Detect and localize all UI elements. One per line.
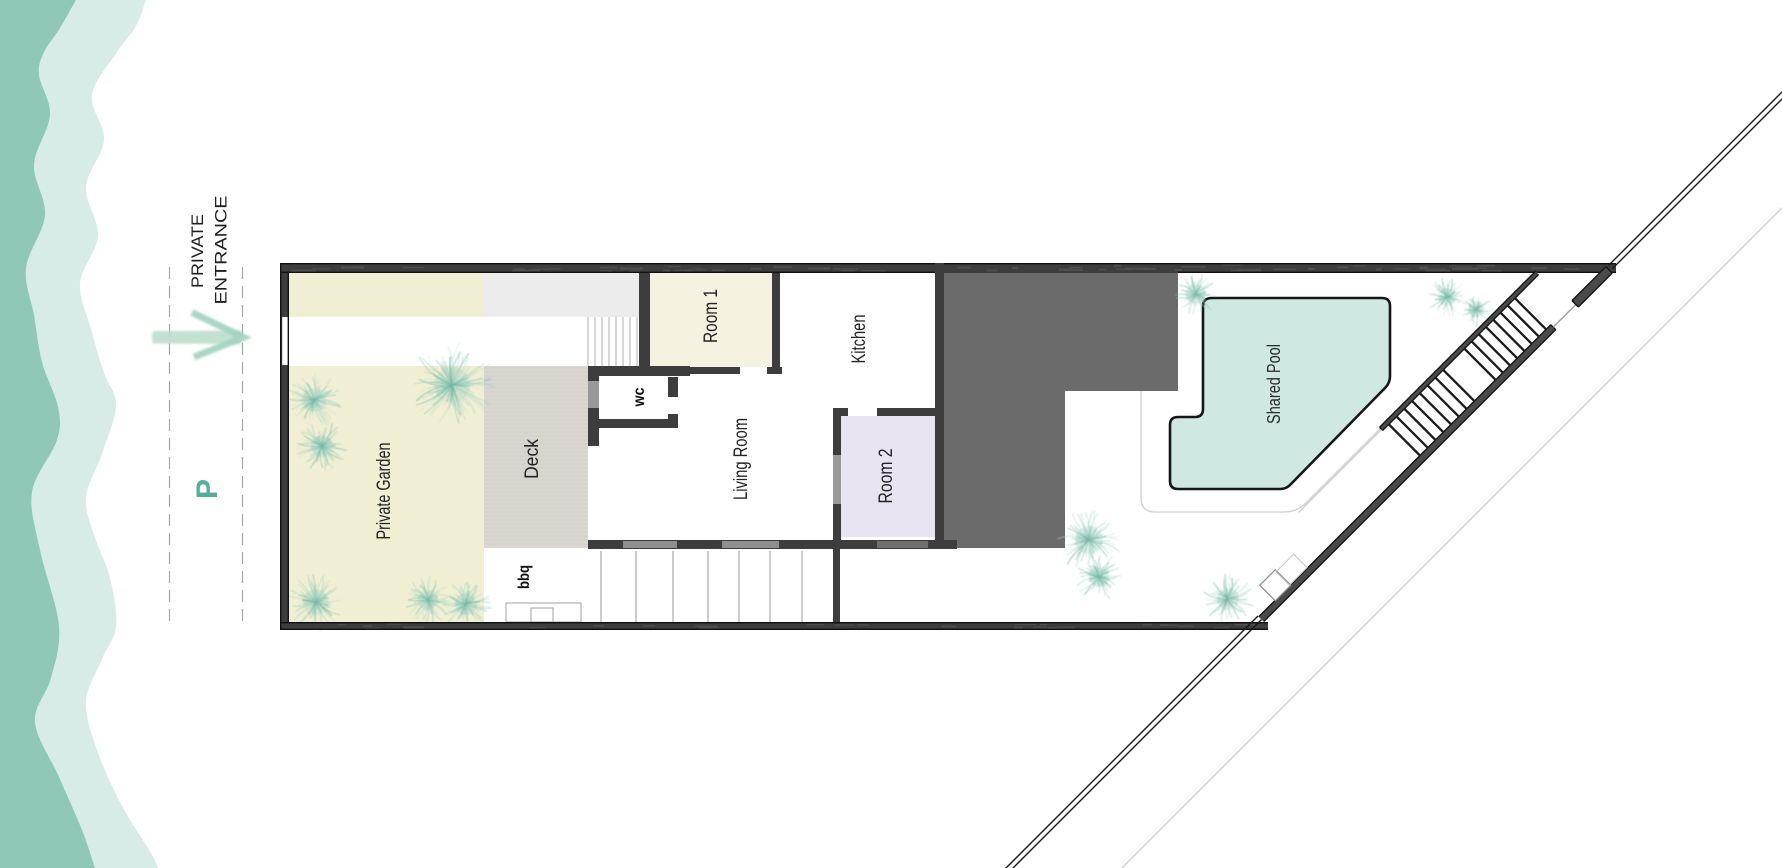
svg-text:bbq: bbq — [516, 565, 533, 589]
svg-text:P: P — [191, 479, 224, 499]
svg-text:Private Garden: Private Garden — [374, 443, 395, 540]
svg-text:Shared Pool: Shared Pool — [1264, 344, 1284, 424]
svg-text:ENTRANCE: ENTRANCE — [211, 196, 230, 305]
svg-text:Living Room: Living Room — [731, 418, 752, 500]
svg-text:Deck: Deck — [522, 439, 543, 479]
svg-text:Room 1: Room 1 — [701, 289, 722, 343]
svg-text:Room 2: Room 2 — [876, 449, 897, 504]
svg-text:PRIVATE: PRIVATE — [188, 214, 207, 288]
svg-text:wc: wc — [631, 387, 648, 407]
svg-text:Kitchen: Kitchen — [849, 315, 870, 364]
